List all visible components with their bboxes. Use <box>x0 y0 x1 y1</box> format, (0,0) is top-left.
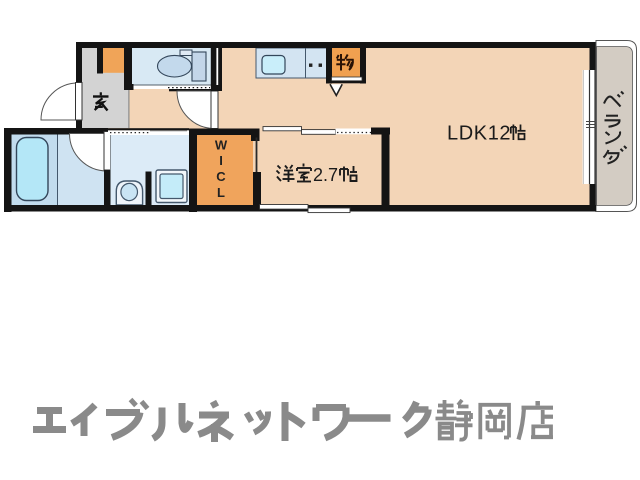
svg-text:LDK12: LDK12 <box>447 123 511 145</box>
svg-text:W: W <box>215 137 228 152</box>
svg-text:C: C <box>216 169 226 184</box>
svg-text:L: L <box>217 185 225 200</box>
svg-text:I: I <box>219 153 223 168</box>
svg-text:2.7: 2.7 <box>313 165 338 185</box>
